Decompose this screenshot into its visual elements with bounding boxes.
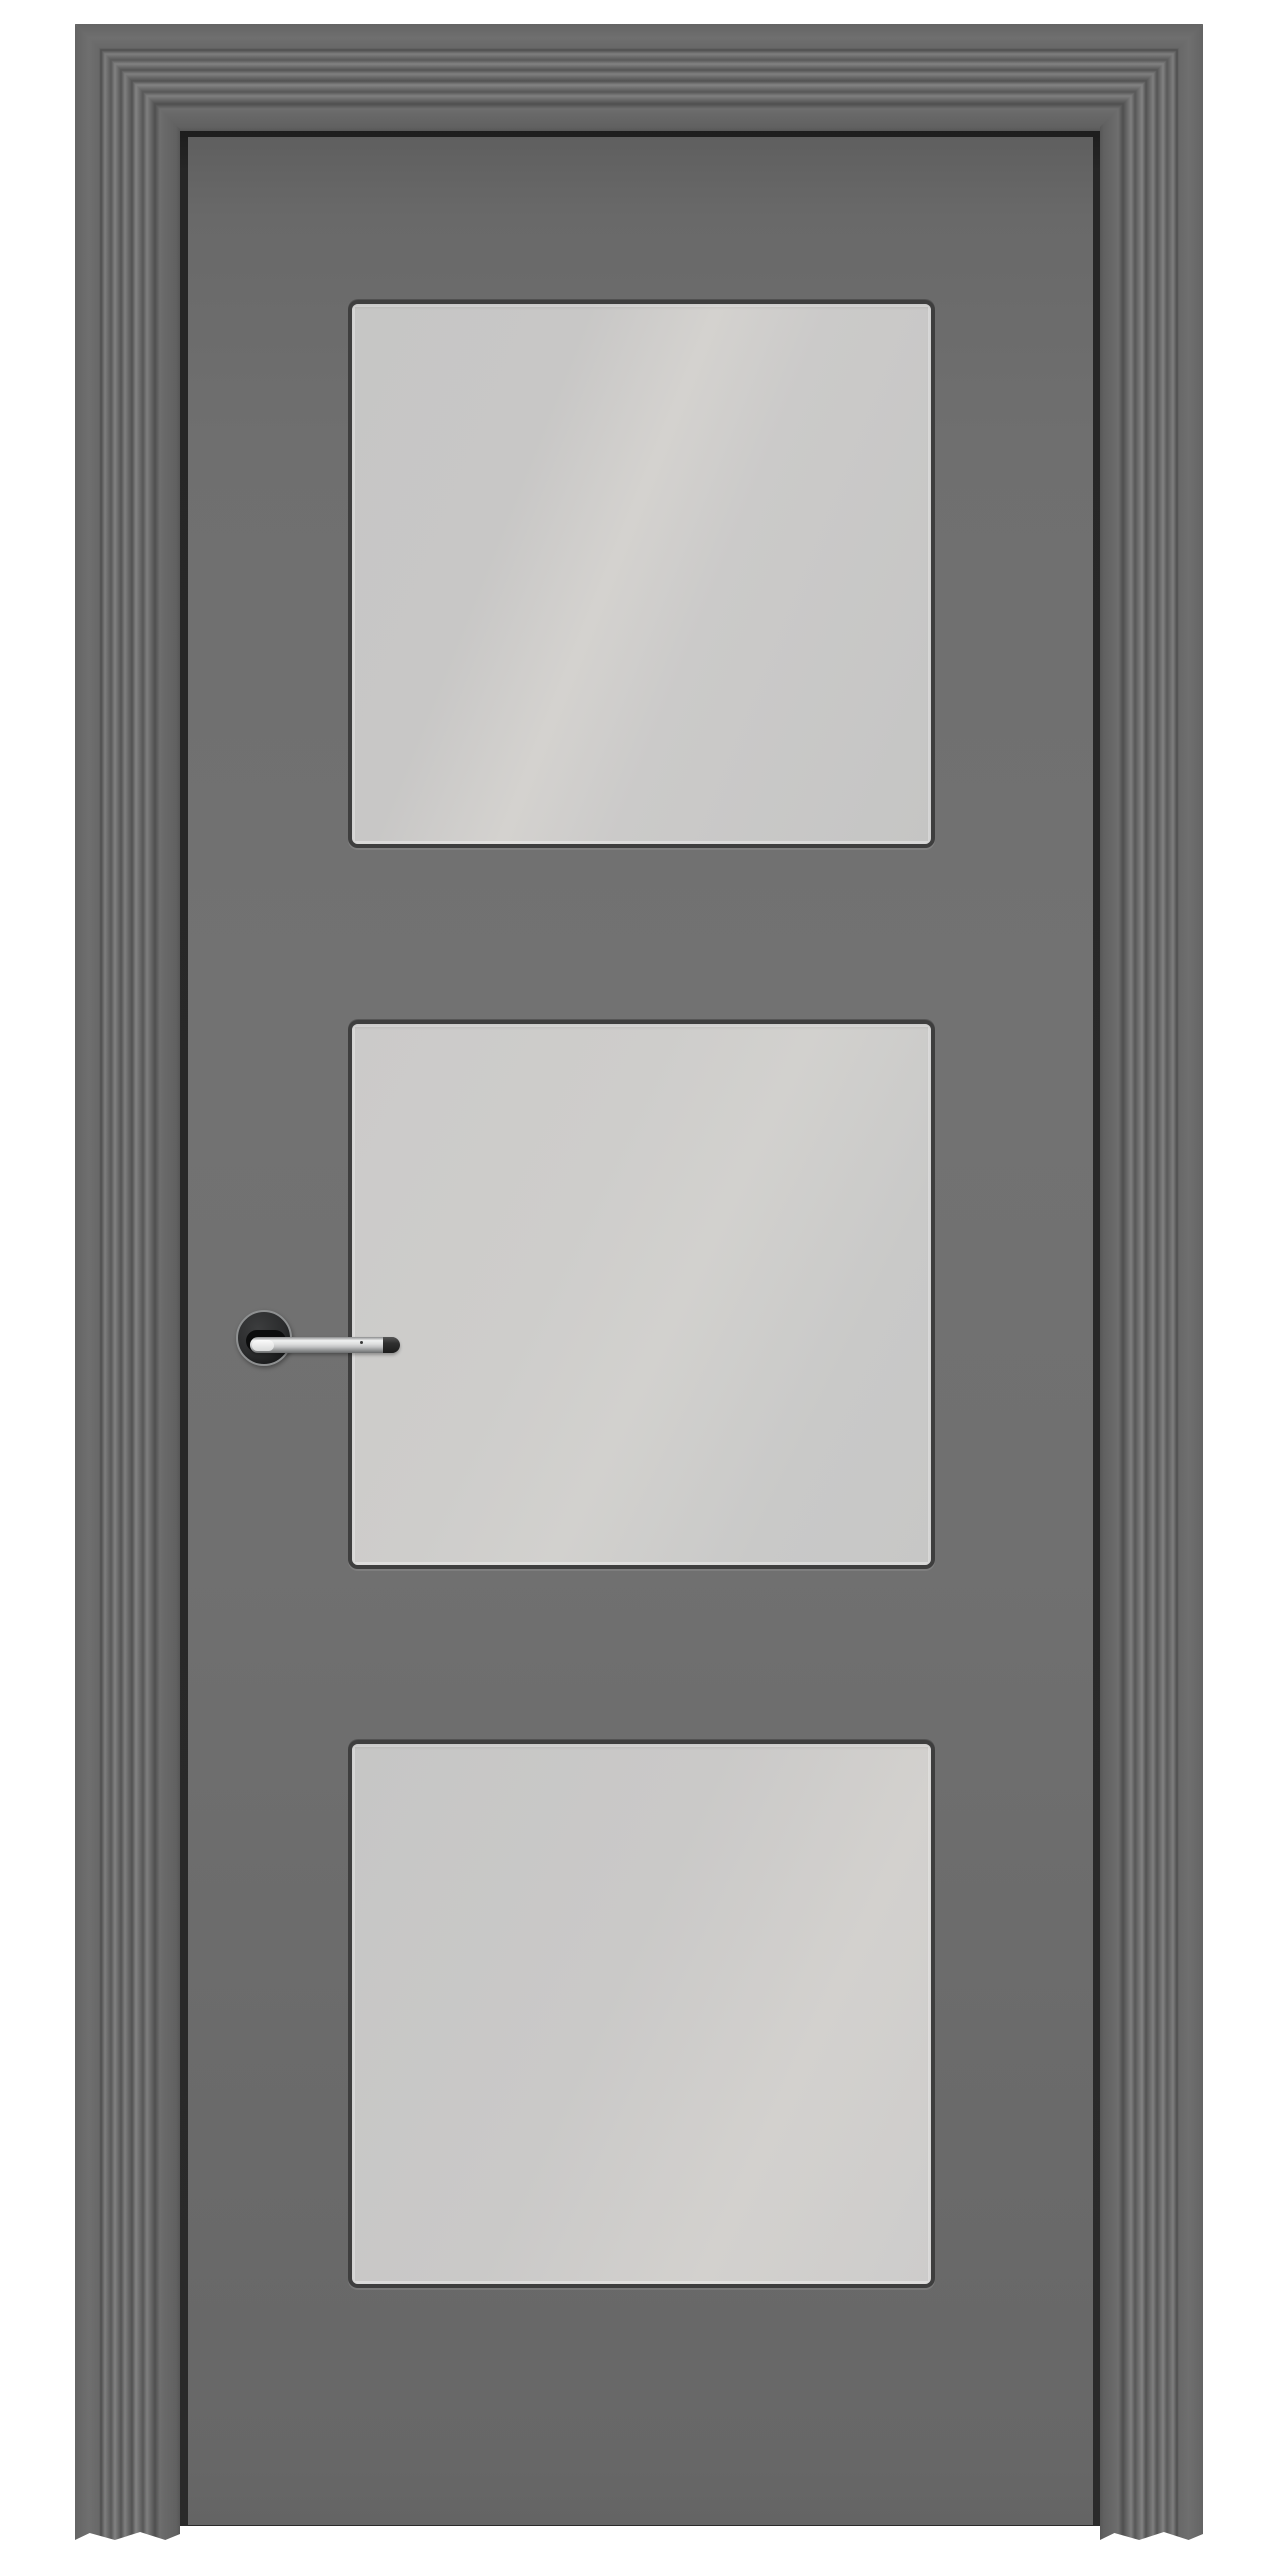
architrave-left <box>75 24 180 2540</box>
architrave-top <box>75 24 1203 131</box>
lever-end-cap <box>383 1337 400 1353</box>
glass-panel-bottom <box>348 1740 935 2288</box>
lever-highlight <box>252 1340 274 1351</box>
door-leaf <box>188 137 1093 2525</box>
frosted-glass <box>352 1024 931 1565</box>
frosted-glass <box>352 1744 931 2284</box>
lever-pin <box>360 1341 363 1344</box>
glass-panel-middle <box>348 1020 935 1569</box>
architrave-right <box>1100 24 1203 2540</box>
frosted-glass <box>352 304 931 844</box>
door-product-photo <box>0 0 1280 2560</box>
glass-panel-top <box>348 300 935 848</box>
